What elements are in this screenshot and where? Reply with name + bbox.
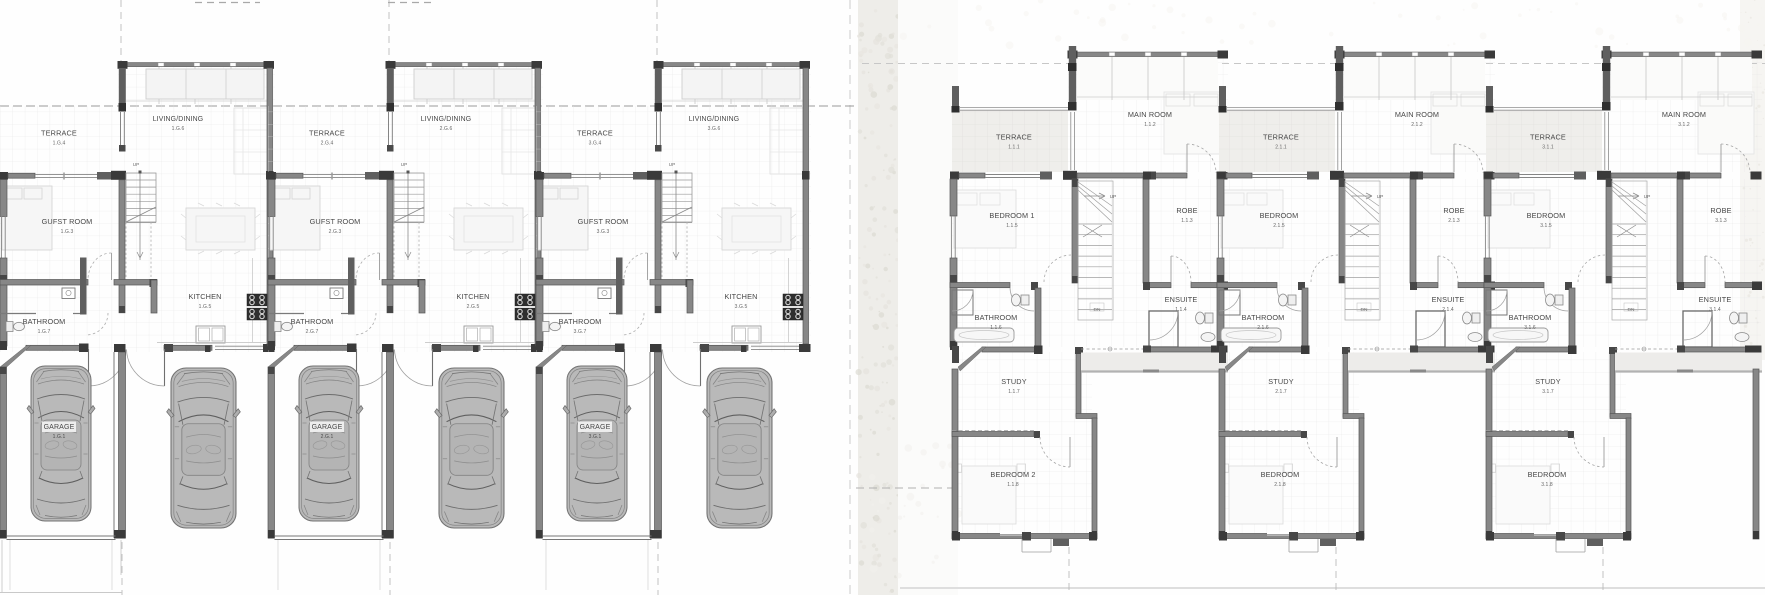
svg-text:BEDROOM: BEDROOM: [1261, 470, 1300, 479]
svg-text:STUDY: STUDY: [1001, 377, 1026, 386]
svg-text:ROBE: ROBE: [1176, 206, 1197, 215]
svg-text:2.1.3: 2.1.3: [1448, 218, 1460, 224]
svg-text:3.1.5: 3.1.5: [1540, 223, 1552, 229]
svg-text:3.G.5: 3.G.5: [735, 304, 748, 310]
svg-text:3.1.1: 3.1.1: [1542, 145, 1554, 151]
svg-text:UP: UP: [1110, 194, 1117, 200]
svg-text:GUFST ROOM: GUFST ROOM: [42, 217, 93, 226]
svg-text:BATHROOM: BATHROOM: [291, 317, 334, 326]
svg-text:2.1.2: 2.1.2: [1411, 122, 1423, 128]
svg-text:ENSUITE: ENSUITE: [1165, 295, 1198, 304]
svg-text:GUFST ROOM: GUFST ROOM: [578, 217, 629, 226]
svg-text:BATHROOM: BATHROOM: [975, 313, 1018, 322]
svg-text:STUDY: STUDY: [1535, 377, 1560, 386]
svg-text:3.G.7: 3.G.7: [574, 329, 587, 335]
svg-text:BEDROOM: BEDROOM: [1528, 470, 1567, 479]
svg-text:2.G.5: 2.G.5: [467, 304, 480, 310]
svg-text:DN: DN: [1094, 307, 1101, 313]
svg-text:1.1.8: 1.1.8: [1007, 482, 1019, 488]
svg-text:2.G.7: 2.G.7: [306, 329, 319, 335]
svg-text:1.1.5: 1.1.5: [1006, 223, 1018, 229]
svg-text:2.G.6: 2.G.6: [440, 126, 453, 132]
svg-text:BEDROOM 1: BEDROOM 1: [989, 211, 1034, 220]
svg-text:2.1.1: 2.1.1: [1275, 145, 1287, 151]
svg-text:KITCHEN: KITCHEN: [188, 292, 221, 301]
svg-text:3.1.8: 3.1.8: [1541, 482, 1553, 488]
svg-text:1.1.4: 1.1.4: [1175, 307, 1187, 313]
svg-text:DN: DN: [1628, 307, 1635, 313]
svg-text:BEDROOM: BEDROOM: [1260, 211, 1299, 220]
svg-text:GARAGE: GARAGE: [312, 424, 343, 431]
svg-text:1.G.1: 1.G.1: [53, 434, 66, 440]
svg-text:KITCHEN: KITCHEN: [456, 292, 489, 301]
svg-text:3.1.7: 3.1.7: [1542, 389, 1554, 395]
svg-text:BATHROOM: BATHROOM: [1242, 313, 1285, 322]
svg-text:MAIN ROOM: MAIN ROOM: [1662, 110, 1706, 119]
svg-text:2.1.4: 2.1.4: [1442, 307, 1454, 313]
svg-text:GUFST ROOM: GUFST ROOM: [310, 217, 361, 226]
svg-text:2.1.8: 2.1.8: [1274, 482, 1286, 488]
svg-text:LIVING/DINING: LIVING/DINING: [153, 116, 204, 123]
svg-text:3.1.2: 3.1.2: [1678, 122, 1690, 128]
svg-text:2.1.6: 2.1.6: [1257, 325, 1269, 331]
svg-text:3.1.4: 3.1.4: [1709, 307, 1721, 313]
svg-text:3.G.3: 3.G.3: [597, 229, 610, 235]
svg-text:2.1.7: 2.1.7: [1275, 389, 1287, 395]
svg-text:BATHROOM: BATHROOM: [23, 317, 66, 326]
svg-text:STUDY: STUDY: [1268, 377, 1293, 386]
svg-text:1.1.3: 1.1.3: [1181, 218, 1193, 224]
svg-text:3.G.4: 3.G.4: [589, 141, 602, 147]
svg-text:2.G.1: 2.G.1: [321, 434, 334, 440]
svg-text:LIVING/DINING: LIVING/DINING: [689, 116, 740, 123]
svg-text:GARAGE: GARAGE: [44, 424, 75, 431]
svg-text:3.G.6: 3.G.6: [708, 126, 721, 132]
svg-text:ENSUITE: ENSUITE: [1432, 295, 1465, 304]
svg-text:TERRACE: TERRACE: [1263, 133, 1299, 142]
svg-text:ENSUITE: ENSUITE: [1699, 295, 1732, 304]
svg-text:1.G.7: 1.G.7: [38, 329, 51, 335]
svg-text:GARAGE: GARAGE: [580, 424, 611, 431]
svg-text:1.G.6: 1.G.6: [172, 126, 185, 132]
svg-text:1.1.7: 1.1.7: [1008, 389, 1020, 395]
svg-text:2.1.5: 2.1.5: [1273, 223, 1285, 229]
svg-text:UP: UP: [669, 162, 675, 167]
svg-text:MAIN ROOM: MAIN ROOM: [1395, 110, 1439, 119]
svg-text:UP: UP: [401, 162, 407, 167]
svg-text:ROBE: ROBE: [1710, 206, 1731, 215]
svg-text:UP: UP: [133, 162, 139, 167]
svg-text:UP: UP: [1377, 194, 1384, 200]
svg-text:3.1.3: 3.1.3: [1715, 218, 1727, 224]
svg-text:3.G.1: 3.G.1: [589, 434, 602, 440]
svg-text:1.G.5: 1.G.5: [199, 304, 212, 310]
svg-text:ROBE: ROBE: [1443, 206, 1464, 215]
svg-text:KITCHEN: KITCHEN: [724, 292, 757, 301]
svg-text:1.1.2: 1.1.2: [1144, 122, 1156, 128]
svg-text:TERRACE: TERRACE: [41, 129, 77, 138]
svg-text:BATHROOM: BATHROOM: [1509, 313, 1552, 322]
svg-text:2.G.3: 2.G.3: [329, 229, 342, 235]
svg-text:TERRACE: TERRACE: [1530, 133, 1566, 142]
svg-text:3.1.6: 3.1.6: [1524, 325, 1536, 331]
svg-text:TERRACE: TERRACE: [309, 129, 345, 138]
svg-text:BATHROOM: BATHROOM: [559, 317, 602, 326]
svg-text:1.G.3: 1.G.3: [61, 229, 74, 235]
svg-text:2.G.4: 2.G.4: [321, 141, 334, 147]
svg-text:DN: DN: [1361, 307, 1368, 313]
svg-text:TERRACE: TERRACE: [577, 129, 613, 138]
svg-text:1.G.4: 1.G.4: [53, 141, 66, 147]
svg-text:TERRACE: TERRACE: [996, 133, 1032, 142]
svg-text:LIVING/DINING: LIVING/DINING: [421, 116, 472, 123]
svg-text:BEDROOM: BEDROOM: [1527, 211, 1566, 220]
svg-text:MAIN ROOM: MAIN ROOM: [1128, 110, 1172, 119]
svg-text:1.1.6: 1.1.6: [990, 325, 1002, 331]
svg-text:UP: UP: [1644, 194, 1651, 200]
svg-text:BEDROOM 2: BEDROOM 2: [990, 470, 1035, 479]
svg-text:1.1.1: 1.1.1: [1008, 145, 1020, 151]
